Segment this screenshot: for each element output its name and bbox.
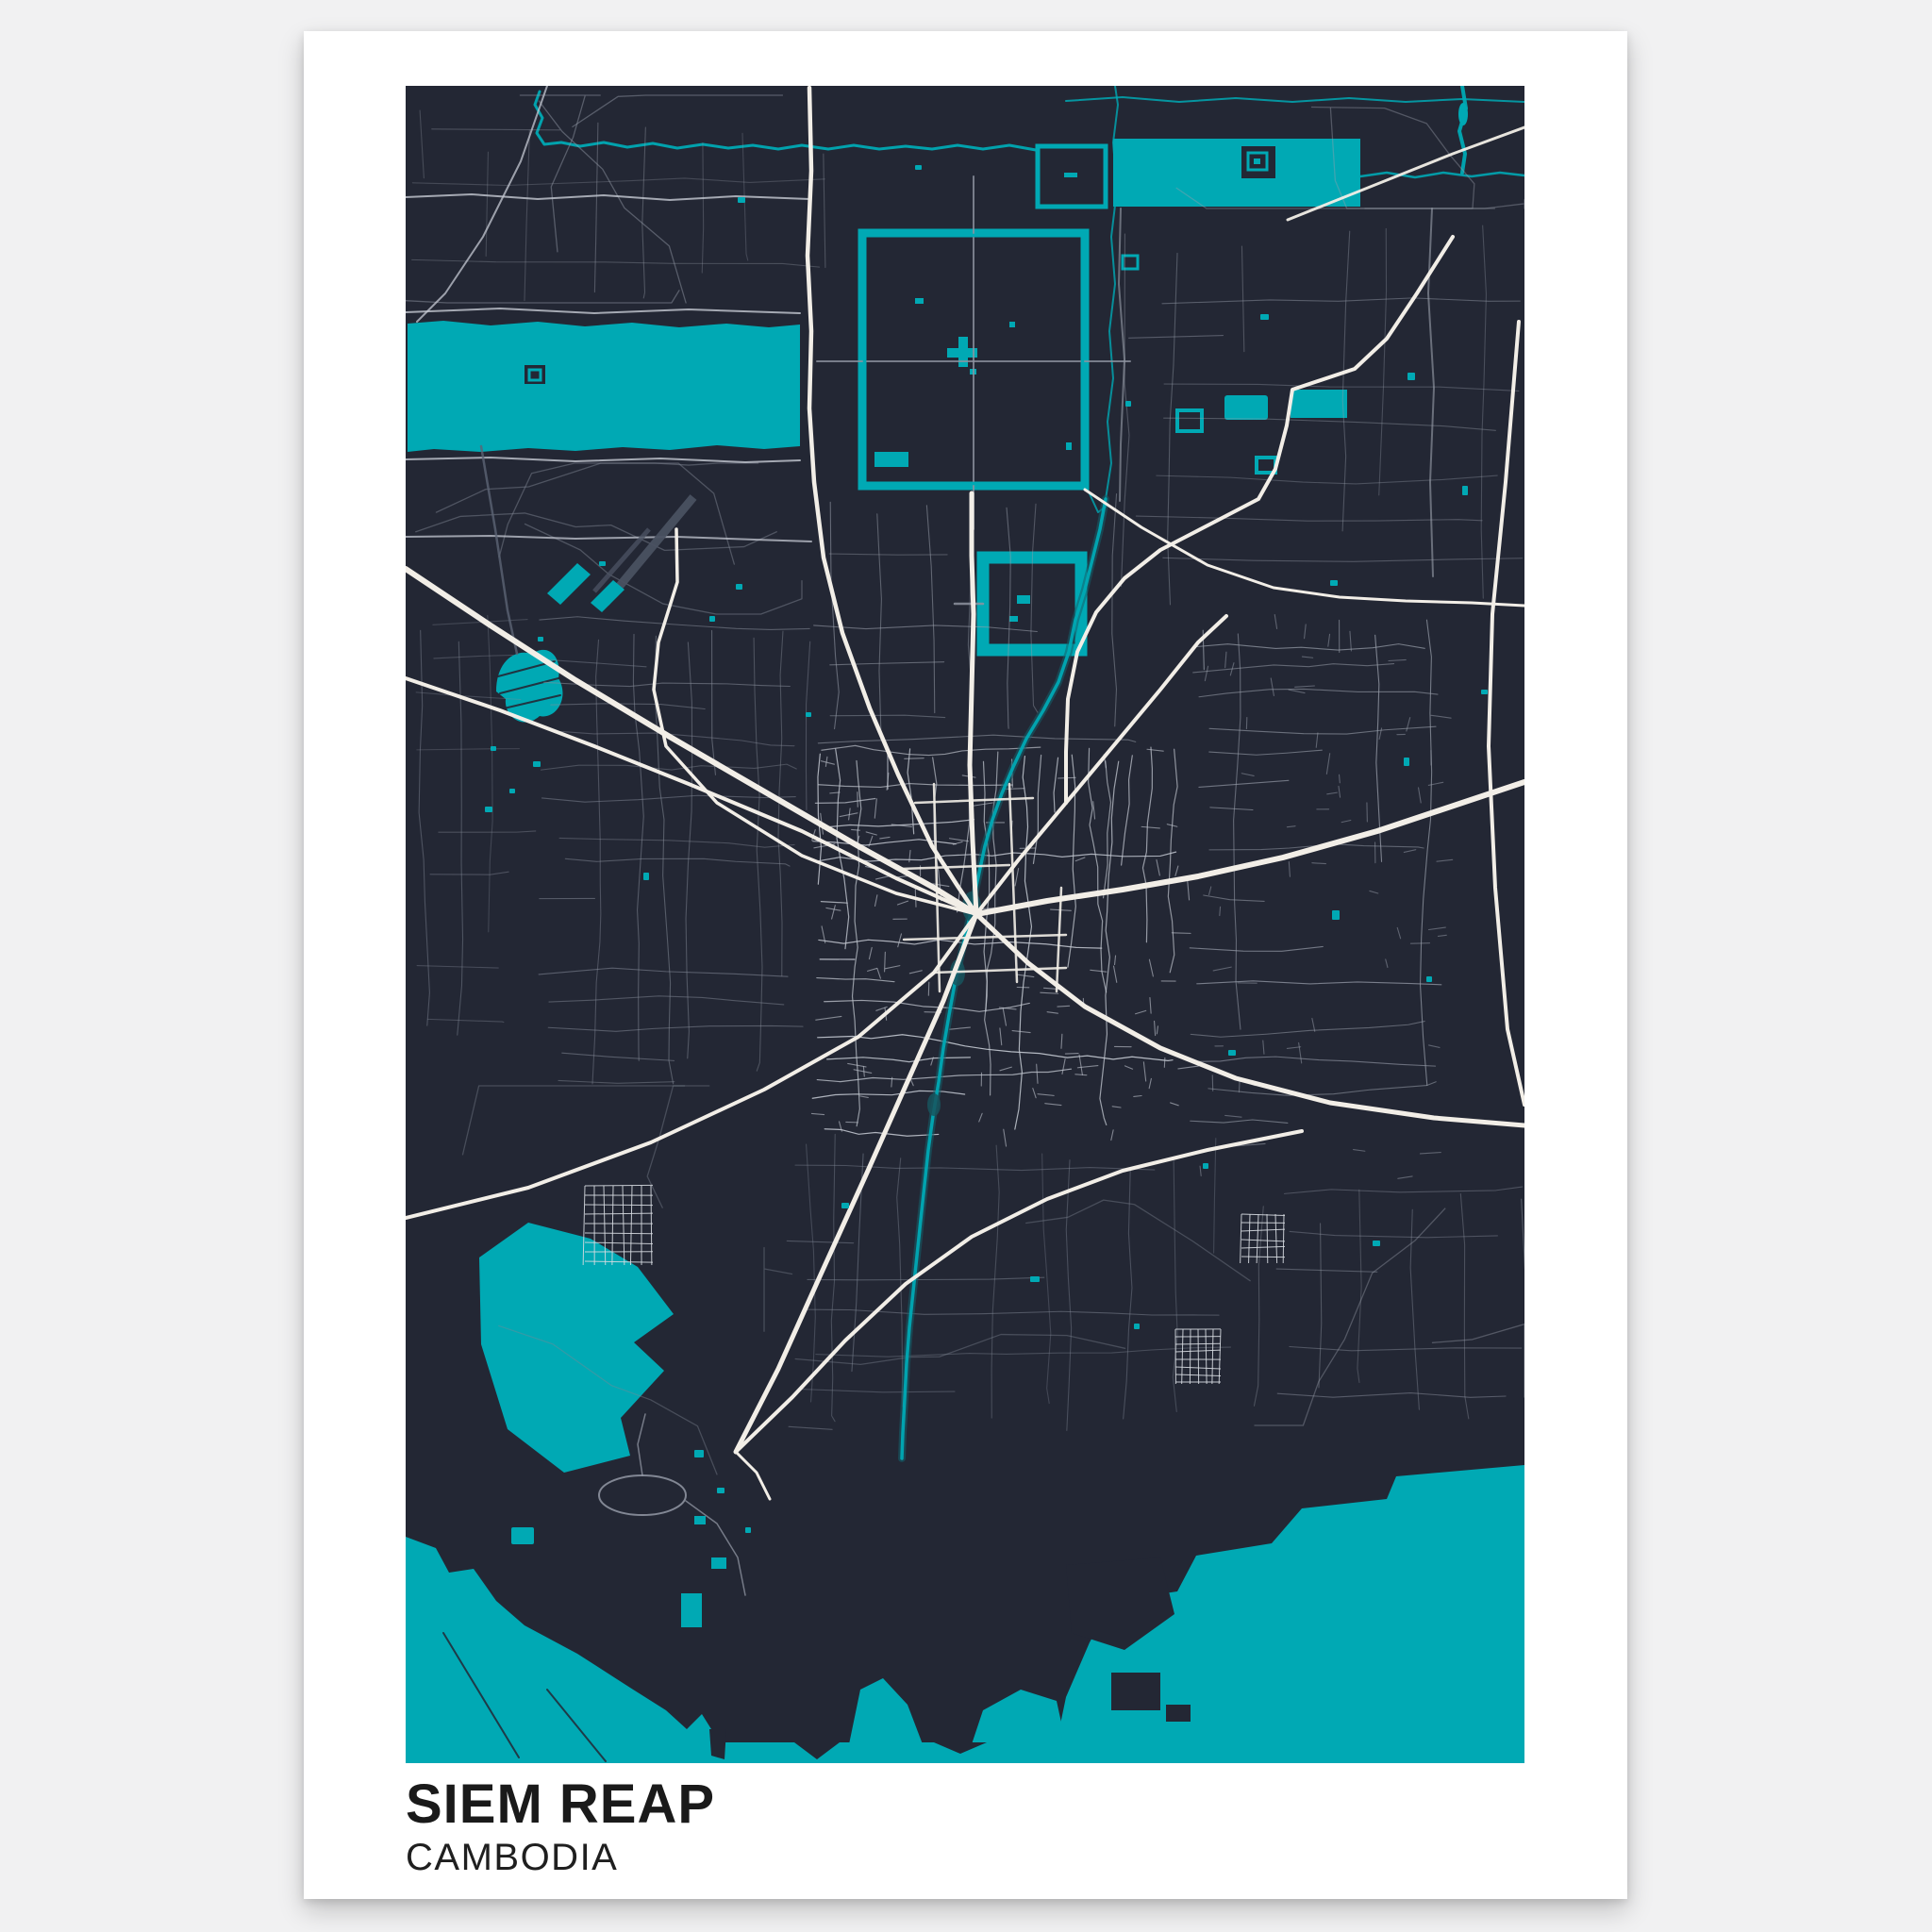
poster-subtitle: CAMBODIA xyxy=(406,1837,715,1879)
city-map-graphic xyxy=(406,86,1524,1763)
map-poster: SIEM REAP CAMBODIA xyxy=(304,31,1627,1899)
page-background: SIEM REAP CAMBODIA xyxy=(0,0,1932,1932)
poster-title: SIEM REAP xyxy=(406,1776,715,1834)
poster-caption: SIEM REAP CAMBODIA xyxy=(406,1776,715,1879)
